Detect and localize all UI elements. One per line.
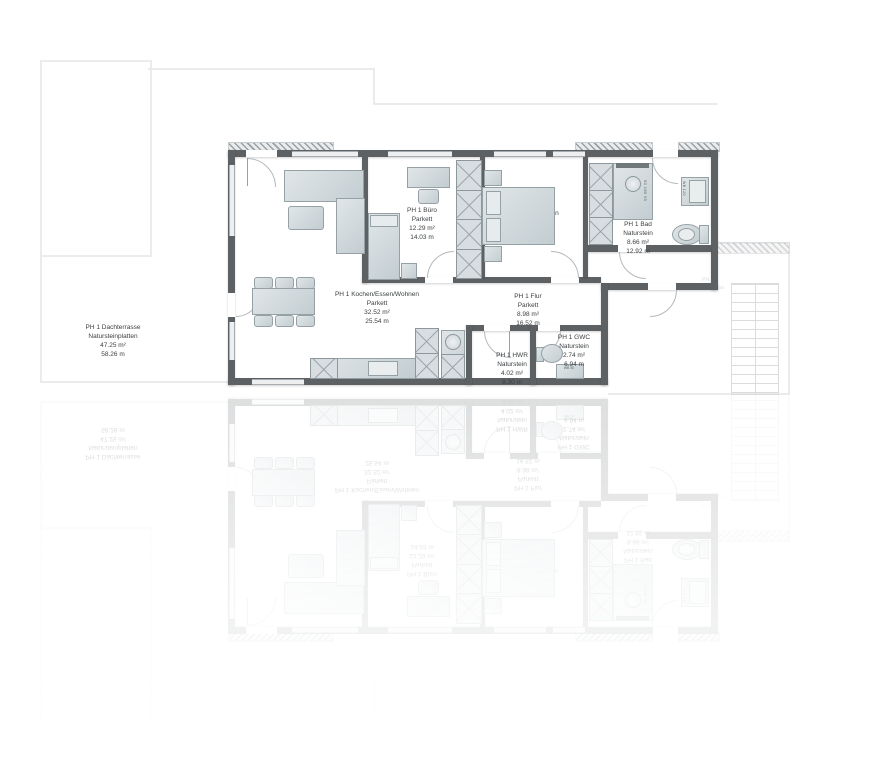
kitchen-cabinet-x [310,405,338,426]
room-perimeter: 16.52 m [483,456,573,465]
dining-chair [296,457,315,469]
room-label-flur: PH 1 Flur Parkett 8.98 m² 16.52 m [483,456,573,492]
window-north-2 [388,151,452,157]
stairwell-edge-right [788,392,790,542]
sofa-vertical [336,198,365,254]
roof-edge-top [148,68,375,70]
room-label-bad: PH 1 Bad Naturstein 8.66 m² 12.92 m [593,220,683,256]
coffee-table [288,206,324,230]
stairwell-hatch [716,530,790,542]
room-name: PH 1 Büro [377,206,467,215]
roof-edge-upper [373,103,718,105]
room-name: PH 1 Büro [377,569,467,578]
room-flooring: Parkett [483,301,573,310]
room-area: 8.98 m² [483,310,573,319]
door-leaf [247,158,248,186]
door-swing-arc-schlafen [551,506,579,533]
room-name: PH 1 Flur [483,292,573,301]
oven-icon [445,334,461,350]
room-perimeter: 25.54 m [332,458,422,467]
room-label-wohnen: PH 1 Kochen/Essen/Wohnen Parkett 32.52 m… [332,290,422,326]
door-opening-terrace-west [228,467,235,491]
room-flooring: Parkett [332,476,422,485]
room-area: 12.29 m² [377,551,467,560]
terrace-edge-bottom [40,381,230,383]
washbasin [689,581,706,604]
room-area: 4.02 m² [467,369,557,378]
window-north-3 [494,627,546,633]
desk-chair [418,189,439,204]
wall-schlafen-bad [583,507,588,627]
washbasin-label: WB 120 [682,181,686,203]
room-name: PH 1 Kochen/Essen/Wohnen [332,290,422,299]
window-west-2 [229,424,235,462]
room-perimeter: 12.92 m [593,247,683,256]
oven-icon [445,434,461,450]
roof-edge-top [148,714,375,716]
door-swing-arc-terrace-north [247,597,276,626]
washbasin [689,180,706,203]
window-north-4 [553,627,585,633]
door-leaf [247,598,248,626]
room-name: PH 1 Dachterrasse [68,323,158,332]
window-north-1 [292,627,358,633]
room-flooring: Naturstein [529,342,619,351]
door-swing-arc-terrace-north [247,158,276,187]
terrace-edge-bottom [40,401,230,403]
window-south-1 [252,379,304,385]
side-table [401,263,417,279]
dining-chair [296,315,315,327]
room-flooring: Naturstein [529,433,619,442]
room-flooring: Naturstein [593,229,683,238]
room-label-wohnen: PH 1 Kochen/Essen/Wohnen Parkett 32.52 m… [332,458,422,494]
window-north-3 [494,151,546,157]
window-north-1 [292,151,358,157]
room-flooring: Natursteinplatten [68,332,158,341]
wall-east [711,150,718,290]
dining-table [252,288,315,315]
dining-chair [275,315,294,327]
room-flooring: Parkett [332,299,422,308]
washbasin-label: WB 120 [682,581,686,603]
room-perimeter: 58.26 m [68,350,158,359]
desk [407,596,450,617]
dining-chair [254,495,273,507]
room-flooring: Parkett [377,215,467,224]
wall-east [711,494,718,634]
door-swing-arc-buero [427,506,454,533]
room-label-gwc: PH 1 GWC Naturstein 2.74 m² 6.94 m [529,415,619,451]
room-area: 8.66 m² [593,238,683,247]
terrace-edge-left [40,253,42,383]
door-opening-terrace-west [228,293,235,317]
bed-pillow [486,569,501,593]
shower-dimension-text: 90 180 90 [643,568,648,604]
room-name: PH 1 Bad [593,555,683,564]
bed-pillow [486,191,501,215]
room-flooring: Parkett [377,560,467,569]
dining-chair [254,277,273,289]
window-north-2 [388,627,452,633]
floorplan-scene: PH 1 Treppenhaus PH 1 Dachterrasse Natur… [0,0,869,757]
room-perimeter: 6.94 m [529,360,619,369]
stairs [731,283,779,395]
room-perimeter: 25.54 m [332,317,422,326]
room-label-buero: PH 1 Büro Parkett 12.29 m² 14.03 m [377,206,467,242]
shower-bar [616,163,649,168]
kitchen-cabinet-x [310,358,338,379]
shower-head-icon [625,592,641,608]
roof-outline-left [40,527,152,724]
dining-chair [275,457,294,469]
shower-bar [616,616,649,621]
room-perimeter: 12.92 m [593,528,683,537]
kitchen-tall-cabinet [415,328,439,379]
window-west-1 [229,165,235,236]
bed-pillow [486,218,501,242]
room-area: 4.02 m² [467,406,557,415]
room-name: PH 1 GWC [529,442,619,451]
kitchen-appliance-x [441,405,465,430]
room-area: 2.74 m² [529,424,619,433]
window-north-4 [553,151,585,157]
dining-chair [296,495,315,507]
room-area: 2.74 m² [529,351,619,360]
door-opening-roof [653,627,678,634]
room-flooring: Parkett [483,474,573,483]
dining-chair [254,457,273,469]
dining-table [252,469,315,496]
room-area: 47.25 m² [68,434,158,443]
room-label-dachterrasse: PH 1 Dachterrasse Natursteinplatten 47.2… [68,323,158,359]
kitchen-sink [368,408,398,423]
room-area: 32.52 m² [332,467,422,476]
window-south-1 [252,399,304,405]
room-name: PH 1 Dachterrasse [68,452,158,461]
door-swing-arc-entrance [650,290,677,317]
desk [407,167,450,188]
stairwell-edge-right [788,242,790,395]
nightstand [484,598,502,614]
wall-schlafen-bad [583,157,588,277]
door-opening-terrace-north [246,627,277,634]
shower-dimension-text: 90 180 90 [643,180,648,216]
room-flooring: Naturstein [593,546,683,555]
room-area: 32.52 m² [332,308,422,317]
room-name: PH 1 Bad [593,220,683,229]
room-name: PH 1 Flur [483,483,573,492]
room-perimeter: 8.30 m [467,397,557,406]
kitchen-sink [368,361,398,376]
room-name: PH 1 Kochen/Essen/Wohnen [332,485,422,494]
door-swing-arc-roof [652,158,678,184]
room-area: 47.25 m² [68,341,158,350]
kitchen-tall-cabinet [415,405,439,456]
roof-outline-left [40,60,152,257]
room-perimeter: 8.30 m [467,378,557,387]
coffee-table [288,554,324,578]
room-area: 8.66 m² [593,537,683,546]
room-perimeter: 6.94 m [529,415,619,424]
toilet-bad-cistern [699,225,709,244]
stairs [731,392,779,501]
roof-edge-step [373,679,375,716]
stairwell-line1: PH 1 [663,500,753,508]
terrace-edge-left [40,401,42,531]
door-swing-arc-schlafen [551,251,579,278]
nightstand [484,246,502,262]
sofa-horizontal [284,582,364,614]
dining-chair [296,277,315,289]
dining-chair [275,277,294,289]
door-opening-terrace-north [246,150,277,157]
kitchen-appliance-x [441,354,465,379]
dining-chair [275,495,294,507]
door-swing-arc-entrance [650,467,677,494]
stairwell-hatch [716,242,790,254]
desk-chair [418,580,439,595]
room-flooring: Natursteinplatten [68,443,158,452]
room-label-buero: PH 1 Büro Parkett 12.29 m² 14.03 m [377,542,467,578]
side-table [401,505,417,521]
toilet-bad-cistern [699,540,709,559]
room-label-bad: PH 1 Bad Naturstein 8.66 m² 12.92 m [593,528,683,564]
door-swing-arc-roof [652,600,678,626]
dining-chair [254,315,273,327]
room-perimeter: 14.03 m [377,233,467,242]
bed-pillow [486,542,501,566]
door-swing-arc-bad [619,252,646,279]
nightstand [484,522,502,538]
door-opening-entrance [648,283,676,290]
room-label-flur: PH 1 Flur Parkett 8.98 m² 16.52 m [483,292,573,328]
room-name: PH 1 GWC [529,333,619,342]
roof-edge-upper [373,679,718,681]
roof-edge-step [373,68,375,105]
room-perimeter: 58.26 m [68,425,158,434]
floor-plan-mirror: PH 1 Treppenhaus PH 1 Dachterrasse Natur… [0,392,869,757]
shower-head-icon [625,176,641,192]
nightstand [484,170,502,186]
window-west-2 [229,322,235,360]
room-label-dachterrasse: PH 1 Dachterrasse Natursteinplatten 47.2… [68,425,158,461]
floor-reflection: PH 1 Treppenhaus PH 1 Dachterrasse Natur… [0,392,869,757]
room-area: 12.29 m² [377,224,467,233]
door-opening-roof [653,150,678,157]
room-perimeter: 14.03 m [377,542,467,551]
window-west-1 [229,548,235,619]
door-opening-entrance [648,494,676,501]
door-swing-arc-buero [427,251,454,278]
room-area: 8.98 m² [483,465,573,474]
sofa-vertical [336,530,365,586]
room-perimeter: 16.52 m [483,319,573,328]
room-label-gwc: PH 1 GWC Naturstein 2.74 m² 6.94 m [529,333,619,369]
floor-plan: PH 1 Treppenhaus PH 1 Dachterrasse Natur… [0,0,869,420]
